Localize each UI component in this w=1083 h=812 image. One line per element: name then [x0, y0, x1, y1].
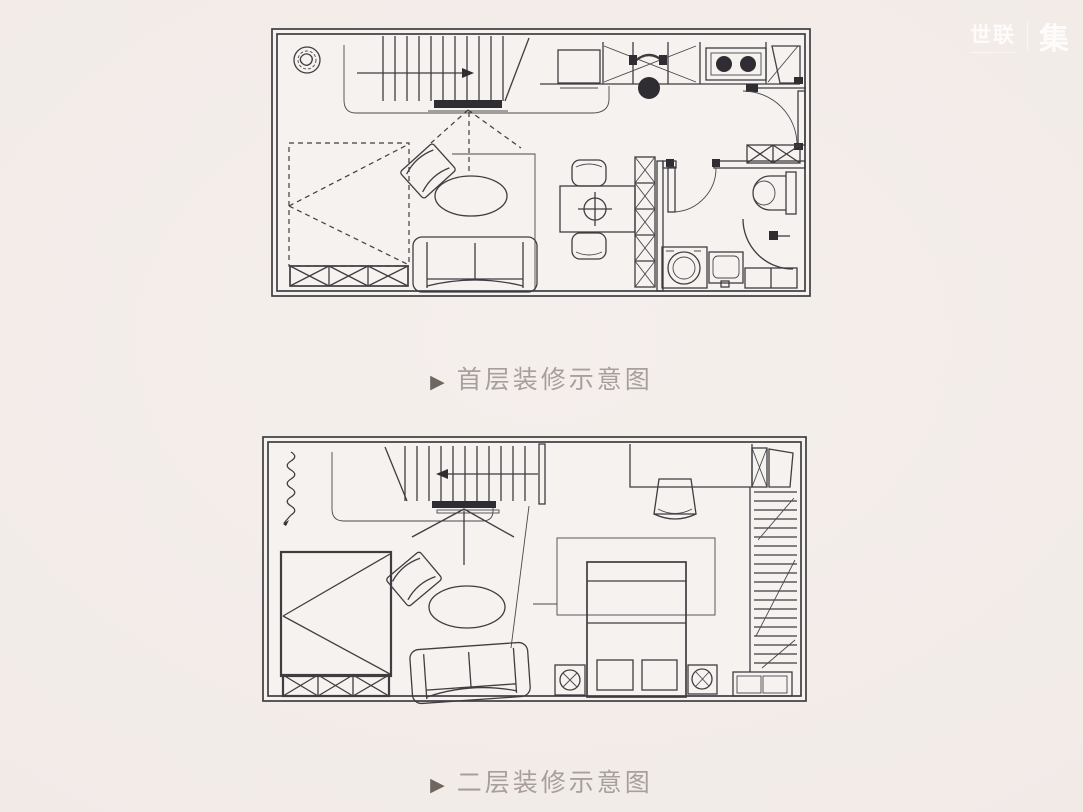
- staircase-up: [357, 36, 529, 111]
- first-floor-caption-text: 首层装修示意图: [457, 365, 653, 394]
- first-floor-plan: [268, 22, 816, 304]
- first-floor-caption: ▶首层装修示意图: [0, 360, 1083, 396]
- second-floor-plan: [258, 431, 810, 707]
- second-floor-caption-text: 二层装修示意图: [457, 768, 653, 797]
- watermark-suffix: 集: [1039, 14, 1069, 58]
- watermark-brand: 世联: [970, 19, 1016, 53]
- second-floor-caption: ▶二层装修示意图: [0, 763, 1083, 799]
- caption-marker-icon: ▶: [430, 774, 445, 796]
- watermark-divider: [1027, 21, 1028, 51]
- exterior-walls: [263, 437, 806, 701]
- caption-marker-icon: ▶: [430, 371, 445, 393]
- watermark: 世联 集: [970, 14, 1069, 58]
